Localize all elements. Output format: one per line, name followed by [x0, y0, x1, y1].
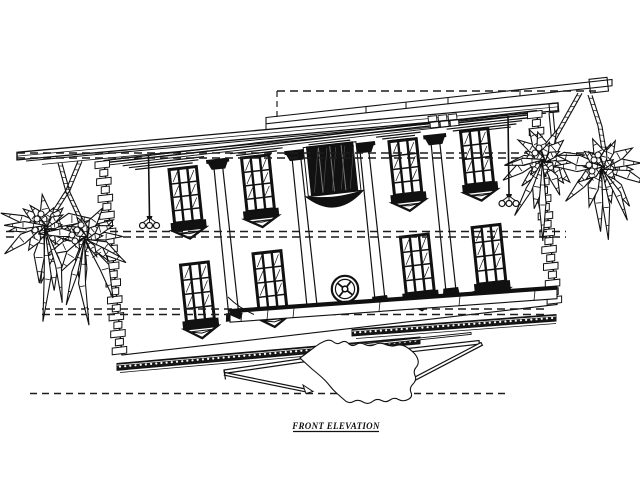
svg-text:FRONT ELEVATION: FRONT ELEVATION [291, 421, 380, 431]
